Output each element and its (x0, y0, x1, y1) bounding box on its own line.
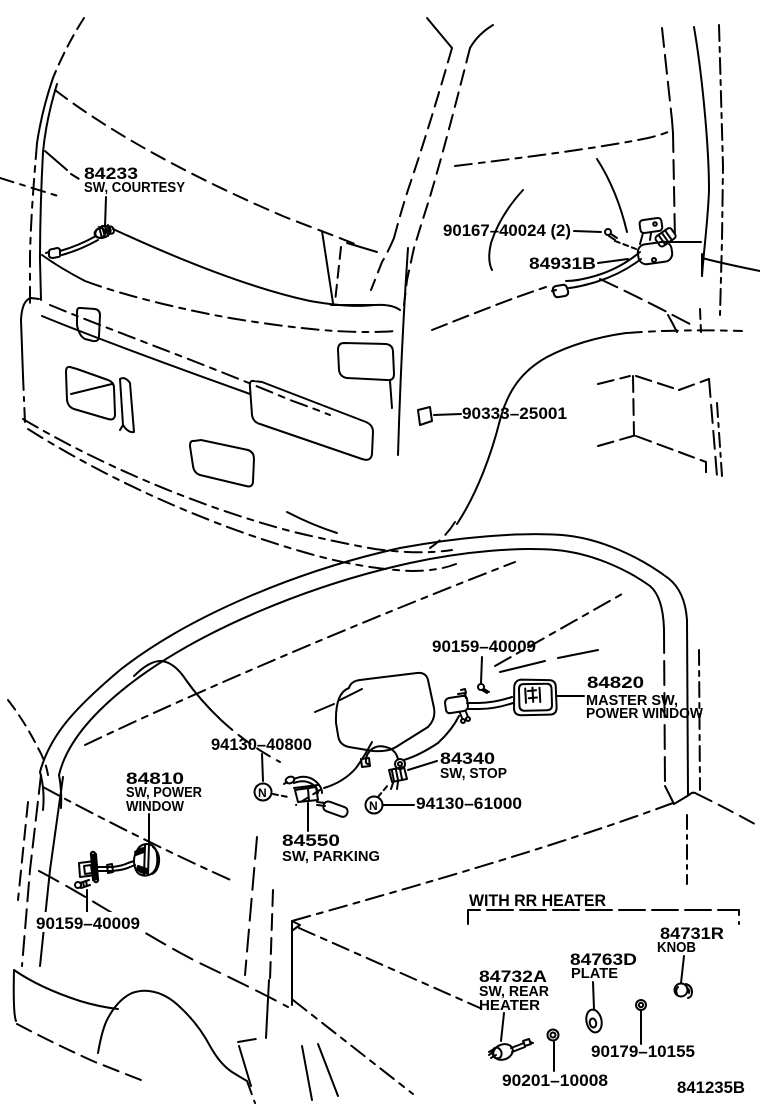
svg-text:WITH RR HEATER: WITH RR HEATER (469, 891, 606, 910)
svg-text:SW, STOP: SW, STOP (440, 766, 507, 782)
svg-text:WINDOW: WINDOW (126, 799, 184, 815)
svg-text:SW, COURTESY: SW, COURTESY (84, 180, 185, 196)
svg-text:84931B: 84931B (529, 254, 596, 273)
svg-text:HEATER: HEATER (479, 998, 541, 1014)
svg-text:KNOB: KNOB (657, 940, 696, 956)
svg-text:90179–10155: 90179–10155 (591, 1042, 695, 1061)
svg-text:90201–10008: 90201–10008 (502, 1071, 608, 1090)
svg-text:84820: 84820 (587, 673, 644, 692)
svg-text:94130–40800: 94130–40800 (211, 735, 312, 754)
svg-text:POWER WINDOW: POWER WINDOW (586, 706, 703, 722)
svg-text:94130–61000: 94130–61000 (416, 794, 522, 813)
svg-text:N: N (258, 786, 267, 800)
svg-text:SW, PARKING: SW, PARKING (282, 849, 380, 865)
svg-text:PLATE: PLATE (571, 966, 618, 982)
svg-text:90159–40009: 90159–40009 (432, 637, 536, 656)
svg-text:90159–40009: 90159–40009 (36, 914, 140, 933)
svg-text:841235B: 841235B (677, 1078, 745, 1097)
svg-text:90333–25001: 90333–25001 (462, 404, 567, 423)
svg-text:N: N (369, 799, 378, 813)
svg-text:84550: 84550 (282, 831, 340, 850)
svg-text:90167–40024 (2): 90167–40024 (2) (443, 221, 571, 240)
